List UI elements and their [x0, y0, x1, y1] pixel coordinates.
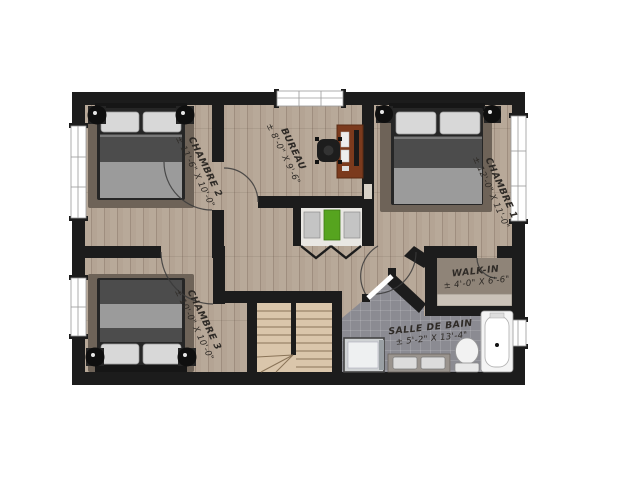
lamp-glow: [93, 111, 97, 115]
lamp-glow: [181, 111, 185, 115]
wall-segment: [497, 246, 512, 258]
wall-segment: [362, 105, 374, 246]
lamp-glow: [91, 353, 95, 357]
lamp-glow: [488, 110, 492, 114]
chair-leg: [338, 137, 342, 141]
office-desk: [337, 125, 363, 178]
sink: [421, 357, 445, 369]
wall-segment: [332, 303, 342, 372]
floor-plan-page: CHAMBRE 1 ± 12'-0" X 11'-0" CHAMBRE 2 ± …: [0, 0, 640, 480]
wall-segment: [425, 258, 437, 306]
toilet-bowl: [456, 338, 479, 364]
lamp: [375, 105, 393, 123]
shower-door: [379, 340, 384, 370]
wall-segment: [85, 246, 161, 258]
lamp: [483, 105, 501, 123]
lamp: [178, 348, 197, 367]
shower-base: [348, 342, 378, 368]
wall-segment: [247, 303, 257, 372]
bathtub-basin: [485, 316, 509, 367]
desk-item: [342, 166, 349, 171]
blanket: [394, 168, 482, 204]
chair-leg: [315, 160, 319, 164]
blanket: [100, 304, 182, 328]
wall-segment: [213, 246, 225, 304]
wall-segment: [424, 246, 477, 258]
laundry-basket: [324, 210, 340, 240]
headboard: [95, 365, 187, 372]
bed-chambre2: [88, 103, 195, 208]
closet-shelf-box: [304, 212, 320, 238]
wall-segment: [247, 291, 342, 303]
bed-chambre1: [375, 103, 501, 212]
toilet-tank: [455, 363, 479, 372]
desk-papers: [341, 132, 349, 147]
lamp-glow: [380, 110, 384, 114]
monitor: [354, 130, 359, 166]
lamp: [86, 348, 105, 367]
walkin-shelf: [437, 294, 512, 306]
wall-segment: [212, 105, 224, 162]
stair-divider-wall: [291, 303, 296, 355]
pillow: [101, 112, 139, 132]
sink: [393, 357, 417, 369]
bathtub-drain: [495, 343, 499, 347]
chair-leg: [338, 160, 342, 164]
desk-papers: [341, 150, 349, 162]
lamp: [88, 106, 107, 125]
pillow: [440, 112, 480, 134]
pillow: [143, 344, 181, 364]
wall-segment: [72, 372, 525, 385]
wall-segment: [293, 208, 301, 246]
lamp: [176, 106, 195, 125]
wall-niche: [364, 184, 372, 199]
chair-cushion: [324, 146, 334, 156]
window: [277, 91, 343, 106]
wall-segment: [258, 196, 374, 208]
blanket: [100, 162, 182, 198]
chair-leg: [315, 137, 319, 141]
window: [71, 126, 86, 218]
closet-shelf-box: [344, 212, 360, 238]
floor-plan-svg: CHAMBRE 1 ± 12'-0" X 11'-0" CHAMBRE 2 ± …: [0, 0, 640, 480]
pillow: [143, 112, 181, 132]
bathtub-faucet: [490, 313, 504, 318]
pillow: [101, 344, 139, 364]
lamp-glow: [183, 353, 187, 357]
pillow: [396, 112, 436, 134]
door-jamb: [388, 268, 396, 276]
